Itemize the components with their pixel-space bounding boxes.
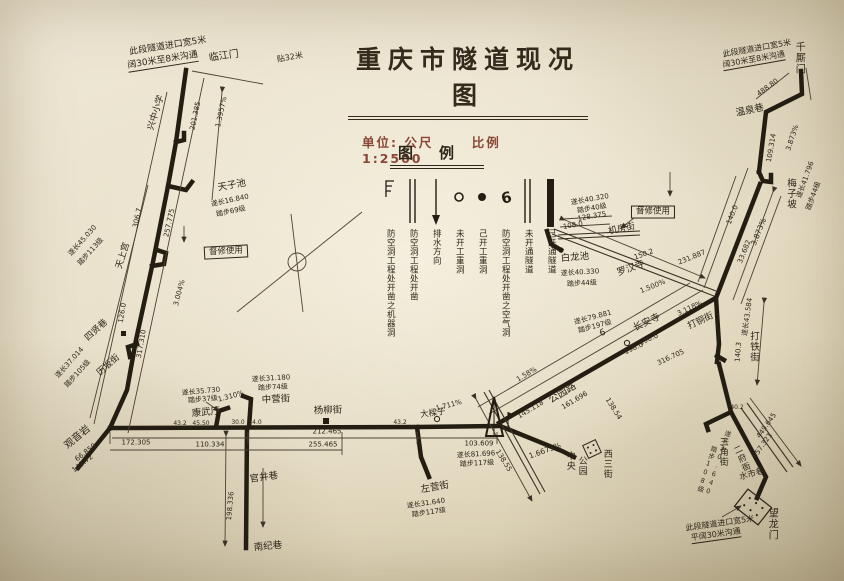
- map-label: 督修使用: [631, 206, 675, 219]
- map-label: 西三街: [601, 449, 610, 479]
- map-label: 梅子坡: [785, 178, 795, 210]
- map-label: 103.609: [465, 440, 494, 447]
- legend-items: 防空洞工程处开凿之机器洞防空洞工程处开凿排水方向未开工重洞己开工重洞6防空洞工程…: [380, 177, 570, 347]
- open-circle-icon: [452, 177, 466, 229]
- map-label: 212.465: [313, 428, 342, 435]
- map-label: 中营街: [262, 394, 291, 405]
- map-label: 踏步74级: [258, 384, 288, 393]
- double-line-icon: [406, 177, 420, 229]
- legend-label: 未开通隧道: [524, 229, 533, 347]
- map-label: 公园: [576, 456, 585, 476]
- legend-item: 防空洞工程处开凿: [403, 177, 423, 347]
- tunnel-line-guanjingxiang: [246, 428, 247, 548]
- map-label: 千厮门: [793, 42, 804, 75]
- map-label: 打铁街: [748, 331, 758, 363]
- legend-item: 未开工重洞: [449, 177, 469, 347]
- bracket-icon: [383, 177, 397, 229]
- legend-item: 防空洞工程处开凿之机器洞: [380, 177, 400, 347]
- legend-title: 图例: [390, 142, 484, 169]
- legend-item: 排水方向: [426, 177, 446, 347]
- legend-item: 己开通隧道: [541, 177, 561, 347]
- legend: 图例 防空洞工程处开凿之机器洞防空洞工程处开凿排水方向未开工重洞己开工重洞6防空…: [380, 142, 570, 347]
- arrow-down-icon: [429, 177, 443, 229]
- thick-bar-icon: [544, 177, 558, 229]
- map-label: 杨柳街: [314, 406, 343, 417]
- survey-crosshair-icon: [237, 212, 362, 312]
- legend-label: 己开通隧道: [547, 229, 556, 347]
- double-line-icon: [521, 177, 535, 229]
- map-label: 督修使用: [204, 244, 249, 259]
- map-label: 望龙门: [766, 508, 777, 541]
- legend-label: 未开工重洞: [455, 229, 464, 347]
- legend-label: 防空洞工程处开凿之空气洞: [501, 229, 510, 347]
- map-label: 中央: [564, 451, 573, 471]
- map-label: 踏步44级: [567, 280, 597, 289]
- legend-label: 己开工重洞: [478, 229, 487, 347]
- legend-label: 防空洞工程处开凿: [409, 229, 418, 347]
- map-label: 14.0: [248, 420, 261, 426]
- page-title: 重庆市隧道现况图: [348, 40, 588, 120]
- legend-item: 未开通隧道: [518, 177, 538, 347]
- tunnel-line-datiejie2: [719, 364, 731, 412]
- map-canvas: 此段隧道进口宽5米阔30米至8米沟通贴32米临江门兴中小学1.3957%201.…: [0, 0, 844, 581]
- map-label: 255.465: [309, 441, 338, 448]
- solid-dot-icon: [475, 177, 489, 229]
- map-label: 172.305: [122, 439, 151, 446]
- started-shaft-icon: [769, 176, 773, 180]
- map-label: 40.2: [730, 405, 743, 411]
- tunnel-spur-sanjiaojie: [706, 412, 731, 430]
- map-label: 43.2: [393, 420, 406, 426]
- map-label: 45.50: [192, 421, 209, 427]
- tunnel-line-datiejie: [716, 298, 719, 362]
- tunnel-spur-zuoyingjie: [417, 427, 429, 477]
- shaft-square-icon: [121, 331, 126, 336]
- svg-text:6: 6: [499, 188, 512, 208]
- legend-label: 排水方向: [432, 229, 441, 347]
- air-hole-icon: 6: [498, 177, 512, 229]
- legend-item: 6防空洞工程处开凿之空气洞: [495, 177, 515, 347]
- shaft-square-icon: [323, 418, 329, 424]
- map-label: 30.0: [231, 420, 244, 426]
- legend-item: 己开工重洞: [472, 177, 492, 347]
- legend-label: 防空洞工程处开凿之机器洞: [386, 229, 395, 347]
- tunnel-line-bottom: [110, 426, 497, 428]
- map-label: 43.2: [173, 421, 186, 427]
- map-label: 110.334: [196, 441, 225, 448]
